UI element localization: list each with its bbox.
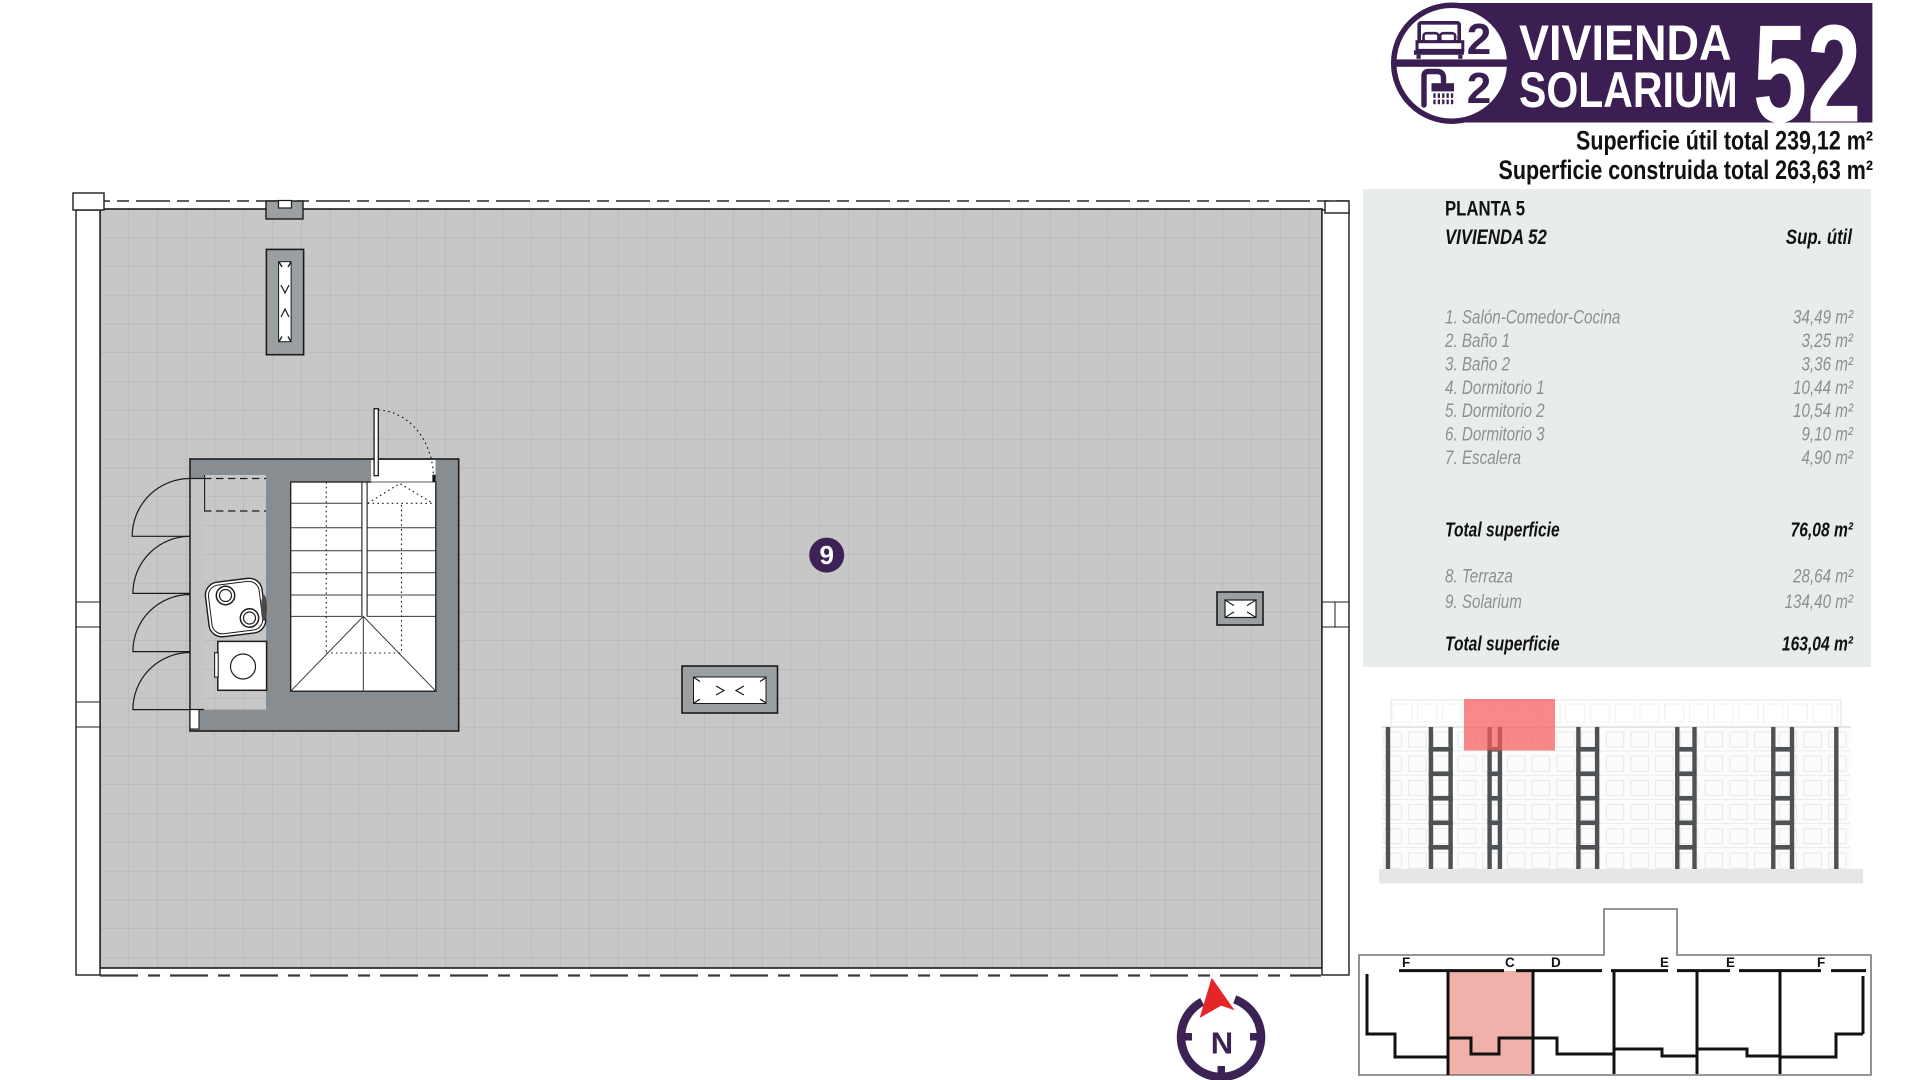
svg-text:4. Dormitorio 1: 4. Dormitorio 1 bbox=[1445, 376, 1545, 398]
svg-text:9. Solarium: 9. Solarium bbox=[1445, 590, 1522, 612]
svg-text:3,36 m²: 3,36 m² bbox=[1801, 353, 1854, 375]
svg-text:N: N bbox=[1211, 1026, 1233, 1061]
svg-text:2: 2 bbox=[1467, 64, 1491, 113]
svg-text:SOLARIUM: SOLARIUM bbox=[1519, 62, 1738, 118]
svg-text:D: D bbox=[1551, 955, 1561, 970]
svg-text:76,08 m²: 76,08 m² bbox=[1791, 519, 1854, 541]
svg-text:10,44 m²: 10,44 m² bbox=[1793, 376, 1854, 398]
svg-text:F: F bbox=[1817, 955, 1825, 970]
svg-text:1. Salón-Comedor-Cocina: 1. Salón-Comedor-Cocina bbox=[1445, 306, 1621, 328]
svg-text:6. Dormitorio 3: 6. Dormitorio 3 bbox=[1445, 423, 1545, 445]
svg-text:C: C bbox=[1505, 955, 1515, 970]
svg-text:134,40 m²: 134,40 m² bbox=[1785, 590, 1854, 612]
svg-text:3,25 m²: 3,25 m² bbox=[1801, 329, 1854, 351]
svg-text:Sup. útil: Sup. útil bbox=[1786, 226, 1853, 249]
svg-text:PLANTA 5: PLANTA 5 bbox=[1445, 198, 1525, 221]
svg-text:Total superficie: Total superficie bbox=[1445, 519, 1560, 541]
svg-text:2. Baño 1: 2. Baño 1 bbox=[1444, 329, 1510, 351]
svg-text:E: E bbox=[1726, 955, 1735, 970]
svg-text:2: 2 bbox=[1467, 15, 1491, 64]
svg-text:3. Baño 2: 3. Baño 2 bbox=[1445, 353, 1510, 375]
svg-text:F: F bbox=[1402, 955, 1410, 970]
svg-text:9,10 m²: 9,10 m² bbox=[1801, 423, 1854, 445]
svg-text:E: E bbox=[1660, 955, 1669, 970]
svg-text:Superficie útil total 239,12 m: Superficie útil total 239,12 m² bbox=[1576, 126, 1873, 156]
svg-text:163,04 m²: 163,04 m² bbox=[1782, 633, 1854, 655]
svg-text:5. Dormitorio 2: 5. Dormitorio 2 bbox=[1445, 399, 1545, 421]
svg-text:Superficie construida total 26: Superficie construida total 263,63 m² bbox=[1499, 156, 1873, 186]
svg-text:34,49 m²: 34,49 m² bbox=[1793, 306, 1854, 328]
svg-text:Total superficie: Total superficie bbox=[1445, 633, 1560, 655]
svg-text:10,54 m²: 10,54 m² bbox=[1793, 399, 1854, 421]
svg-text:VIVIENDA 52: VIVIENDA 52 bbox=[1445, 226, 1547, 249]
svg-text:9: 9 bbox=[819, 540, 833, 570]
svg-text:28,64 m²: 28,64 m² bbox=[1792, 565, 1854, 587]
svg-text:7. Escalera: 7. Escalera bbox=[1445, 446, 1521, 468]
svg-text:4,90 m²: 4,90 m² bbox=[1801, 446, 1854, 468]
svg-text:8. Terraza: 8. Terraza bbox=[1445, 565, 1513, 587]
